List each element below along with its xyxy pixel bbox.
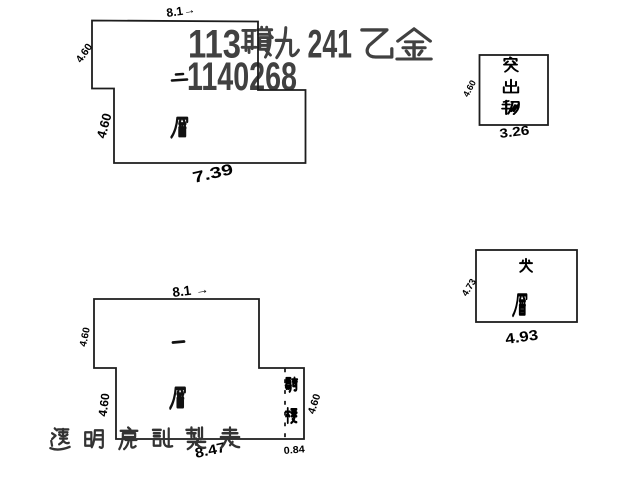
svg-text:8.1: 8.1 — [165, 4, 184, 20]
svg-text:3.26: 3.26 — [499, 122, 531, 141]
svg-text:4.60: 4.60 — [78, 326, 93, 348]
svg-text:→: → — [194, 281, 210, 298]
svg-text:4.60: 4.60 — [461, 78, 478, 98]
svg-text:1140268: 1140268 — [187, 55, 297, 99]
svg-text:241: 241 — [308, 23, 353, 67]
svg-text:7.39: 7.39 — [191, 161, 235, 187]
svg-text:0.84: 0.84 — [283, 444, 305, 457]
svg-text:4.93: 4.93 — [504, 328, 539, 348]
svg-text:8.1: 8.1 — [172, 283, 193, 300]
svg-text:4.60: 4.60 — [95, 392, 112, 417]
svg-text:4.60: 4.60 — [94, 112, 115, 140]
svg-text:4.60: 4.60 — [306, 392, 324, 415]
svg-text:→: → — [182, 2, 196, 18]
